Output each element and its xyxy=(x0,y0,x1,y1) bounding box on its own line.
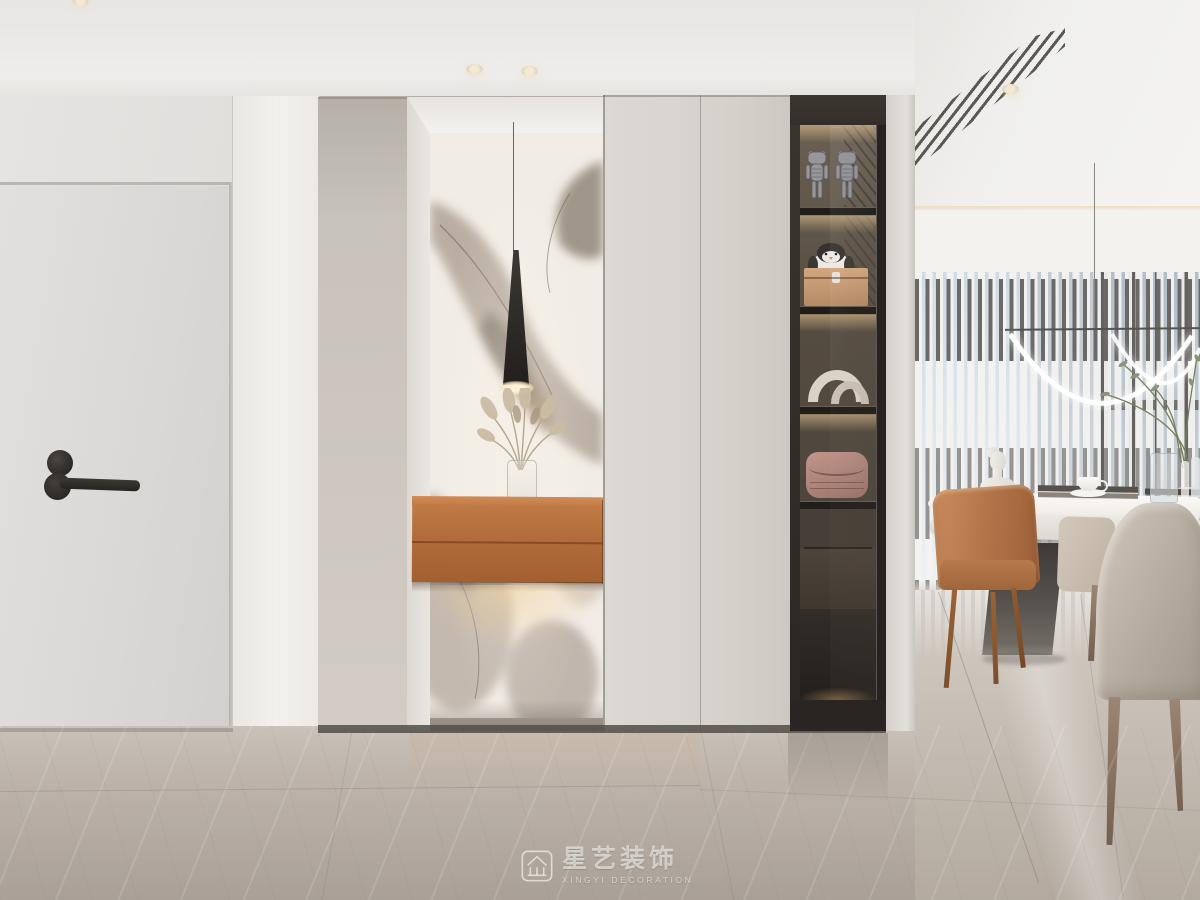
entryway-interior-render: 星艺装饰 XINGYI DECORATION xyxy=(0,0,1200,900)
glass-door-reflection xyxy=(830,125,877,700)
wardrobe-door-seam xyxy=(700,95,701,731)
bust-head xyxy=(990,451,1006,471)
display-cabinet xyxy=(790,95,886,731)
door-base-shadow xyxy=(0,728,233,732)
cabinet-top-panel xyxy=(790,95,886,125)
console-underglow xyxy=(420,585,600,647)
glass-bottle xyxy=(1191,457,1200,497)
pavilion-logo-icon xyxy=(521,850,553,882)
cabinet-frame-right xyxy=(876,125,886,700)
niche-ceiling xyxy=(407,97,603,134)
ceiling-spotlight xyxy=(466,64,483,74)
entry-door xyxy=(0,186,229,731)
wardrobe-taupe-panel xyxy=(318,97,408,733)
wardrobe-doors xyxy=(603,95,790,733)
watermark-text-cn: 星艺装饰 xyxy=(562,847,693,872)
cone-pendant-wire xyxy=(513,122,514,252)
niche-floor-reflection xyxy=(410,733,700,785)
door-lock xyxy=(47,450,73,476)
dining-spotlight xyxy=(1002,84,1019,94)
ring-pendant-wire xyxy=(1094,163,1095,330)
watermark-text: 星艺装饰 XINGYI DECORATION xyxy=(562,847,693,885)
chair-caramel-seat xyxy=(940,560,1036,590)
cabinet-frame-left xyxy=(790,125,800,700)
wall-pillar xyxy=(232,96,319,732)
plant-branches xyxy=(1085,348,1200,470)
corner-wall xyxy=(886,95,915,731)
cabinet-bottom-panel xyxy=(790,700,886,731)
hallway-ceiling xyxy=(0,0,915,96)
watermark: 星艺装饰 XINGYI DECORATION xyxy=(521,847,693,885)
glass-bottle xyxy=(1181,461,1189,497)
art-toy-figure xyxy=(804,149,830,205)
dining-far-wall xyxy=(905,210,1200,274)
cabinet-floor-reflection xyxy=(788,733,888,805)
door-frame-head xyxy=(0,182,233,185)
wardrobe-edge-line xyxy=(603,95,605,731)
ceiling-spotlight xyxy=(521,66,538,76)
glass-vase-dining xyxy=(1150,453,1178,503)
watermark-text-en: XINGYI DECORATION xyxy=(562,875,693,885)
